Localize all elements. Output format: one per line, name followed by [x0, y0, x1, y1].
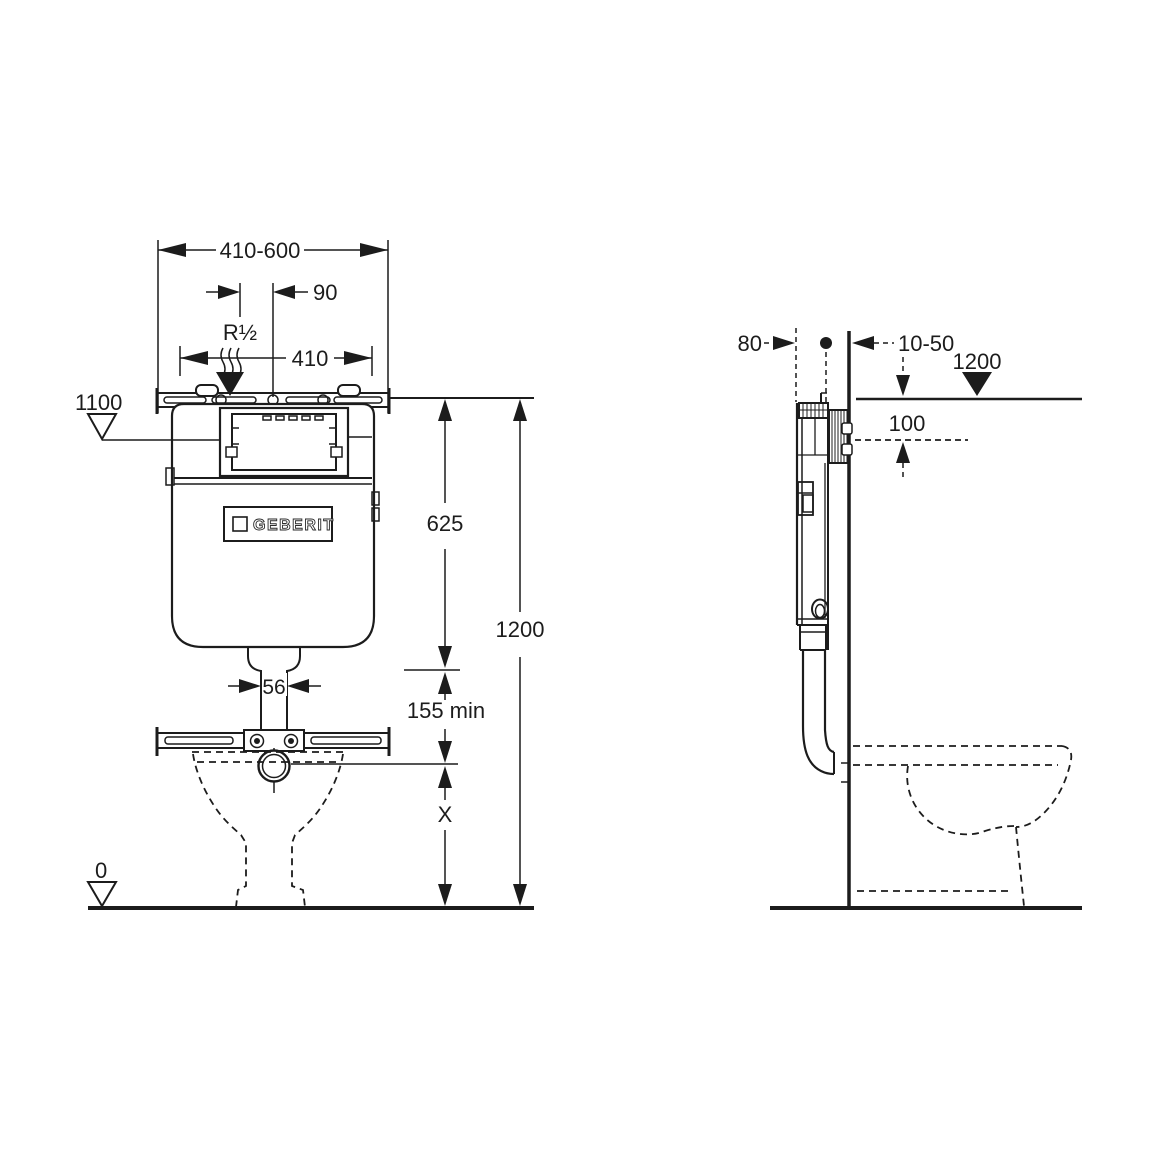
cistern-side-profile: [797, 393, 852, 782]
label-width-range: 410-600: [220, 238, 301, 263]
label-offset-100: 100: [889, 411, 926, 436]
label-supply: R½: [223, 320, 257, 345]
pipe-center-dot-icon: [820, 337, 832, 349]
label-level-1100: 1100: [75, 390, 122, 415]
front-view: GEBERIT: [75, 238, 544, 908]
wc-pan-outline-side: [853, 746, 1071, 906]
water-wave-icon: [229, 348, 233, 376]
dim-pipe-56: 56: [228, 673, 321, 699]
label-depth-80: 80: [738, 331, 762, 356]
outlet-socket: [259, 748, 459, 793]
label-wall-finish: 10-50: [898, 331, 954, 356]
label-variable-x: X: [438, 802, 453, 827]
label-offset-90: 90: [313, 280, 337, 305]
dim-column-total-height: 1200: [496, 399, 545, 906]
label-total-1200: 1200: [496, 617, 545, 642]
dim-offset-90: 90: [206, 280, 337, 305]
level-marker-1200-side: 1200: [953, 349, 1002, 396]
water-wave-icon: [237, 348, 241, 376]
installation-diagram: GEBERIT: [0, 0, 1150, 1150]
dim-column-inner: 625 155 min X: [390, 398, 534, 906]
level-marker-0: 0: [88, 858, 116, 906]
label-height-625: 625: [427, 511, 464, 536]
side-view: 80 10-50 1200 100: [738, 328, 1082, 908]
label-level-1200: 1200: [953, 349, 1002, 374]
label-width-410: 410: [292, 346, 329, 371]
label-min-155: 155 min: [407, 698, 485, 723]
water-wave-icon: [221, 348, 225, 376]
dim-wall-finish: 10-50: [852, 331, 954, 356]
dim-width-410: 410: [180, 346, 372, 371]
dim-width-range: 410-600: [158, 238, 388, 263]
brand-logo-text: GEBERIT: [253, 517, 335, 534]
label-level-0: 0: [95, 858, 107, 883]
dim-offset-100: 100: [855, 357, 968, 480]
dim-depth-80: 80: [738, 328, 832, 402]
label-pipe-56: 56: [262, 676, 285, 699]
technical-drawing-page: GEBERIT: [0, 0, 1150, 1150]
